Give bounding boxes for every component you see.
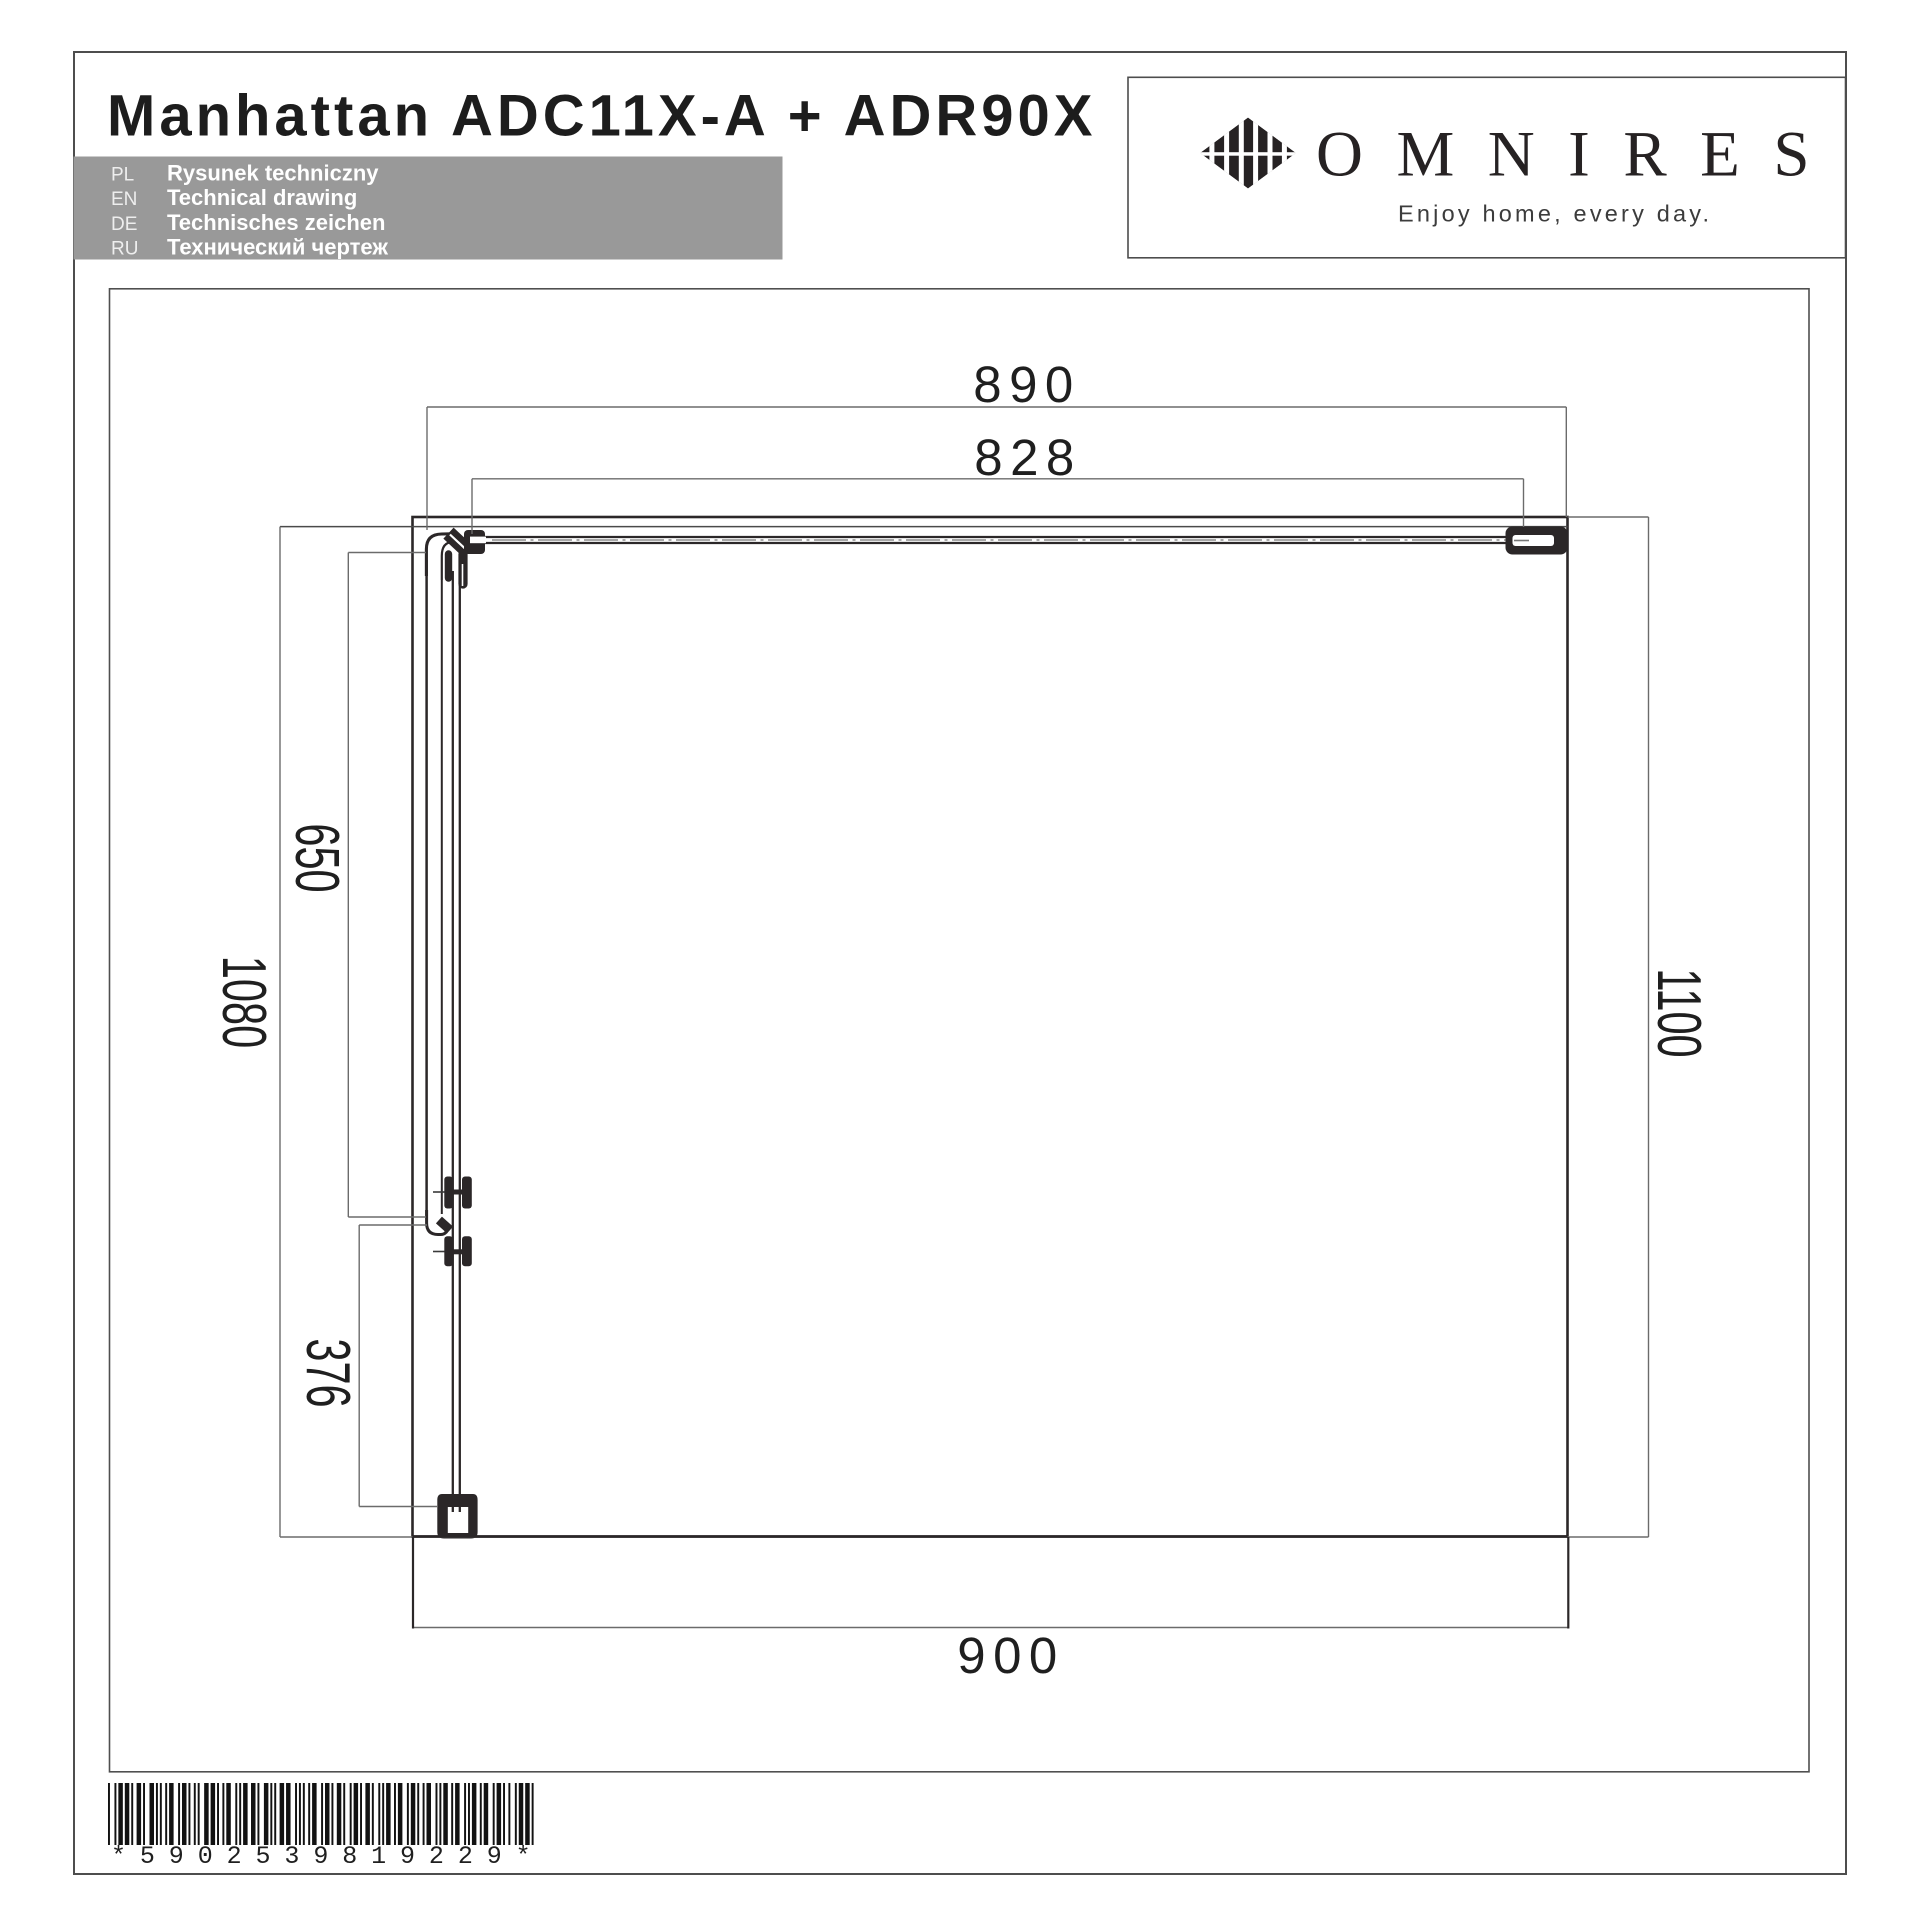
svg-text:1080: 1080 [209, 956, 278, 1048]
svg-text:Технический чертеж: Технический чертеж [167, 235, 388, 260]
svg-text:EN: EN [111, 189, 137, 210]
svg-text:Technisches zeichen: Technisches zeichen [167, 210, 385, 235]
svg-text:Manhattan ADC11X-A + ADR90X: Manhattan ADC11X-A + ADR90X [107, 84, 1096, 149]
svg-text:Technical drawing: Technical drawing [167, 185, 357, 210]
svg-text:OMNIRES: OMNIRES [1316, 119, 1843, 191]
svg-text:*5902539819229*: *5902539819229* [111, 1842, 545, 1871]
svg-text:PL: PL [111, 164, 134, 185]
svg-text:RU: RU [111, 239, 138, 260]
svg-text:828: 828 [974, 429, 1082, 486]
svg-text:1100: 1100 [1644, 968, 1713, 1057]
svg-text:890: 890 [973, 356, 1081, 413]
svg-text:DE: DE [111, 214, 137, 235]
svg-text:Enjoy home, every day.: Enjoy home, every day. [1398, 201, 1712, 227]
svg-text:376: 376 [293, 1338, 362, 1407]
svg-text:650: 650 [282, 823, 351, 892]
svg-text:Rysunek techniczny: Rysunek techniczny [167, 160, 379, 185]
svg-text:900: 900 [957, 1627, 1065, 1684]
